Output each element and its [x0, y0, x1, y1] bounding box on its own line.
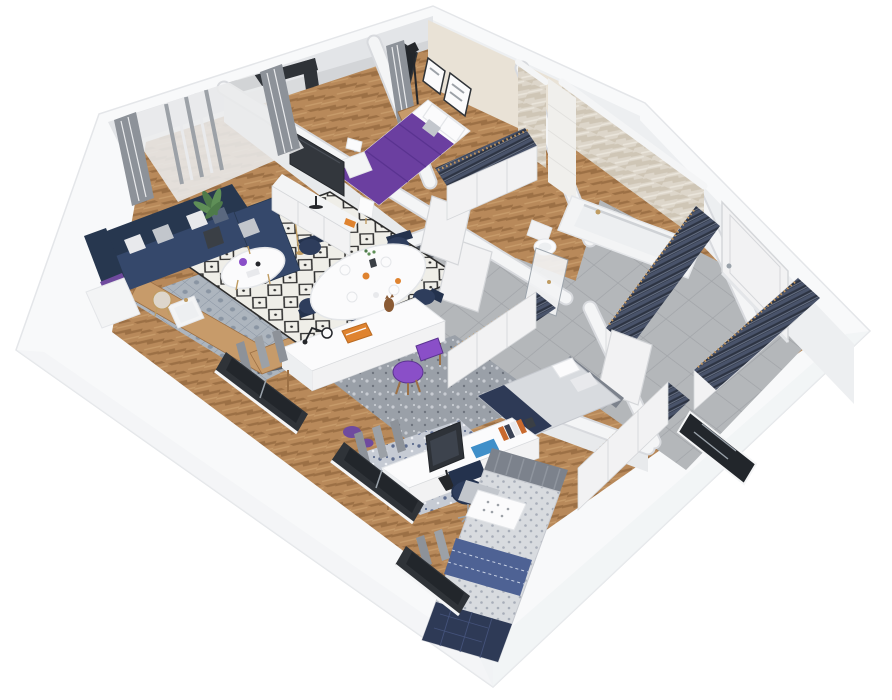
sink-faucet	[184, 298, 188, 302]
apartment-3d-floorplan	[0, 0, 892, 700]
floorplan-render	[0, 0, 892, 700]
decor-item	[256, 262, 261, 267]
orange-food	[363, 273, 370, 280]
shower-door-handle	[547, 280, 551, 284]
orange-food	[395, 278, 401, 284]
door-handle	[727, 264, 732, 269]
tub-faucet	[596, 210, 601, 215]
bowl	[373, 292, 379, 298]
purple-vase	[239, 258, 247, 266]
